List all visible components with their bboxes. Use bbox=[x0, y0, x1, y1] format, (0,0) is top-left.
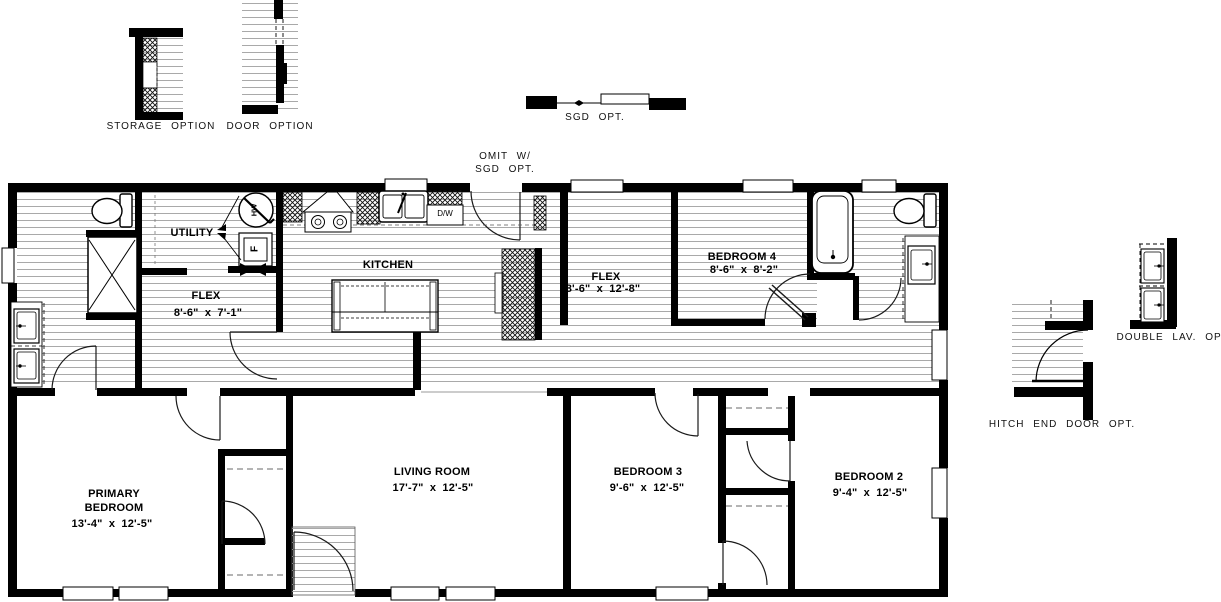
hitch-end-door-diagram bbox=[1012, 300, 1093, 420]
room-label-flex-front: FLEX bbox=[192, 290, 221, 302]
sgd-option-diagram bbox=[526, 94, 686, 110]
room-dims-bedroom4: 8'-6" x 8'-2" bbox=[710, 264, 778, 276]
room-label-bedroom2: BEDROOM 2 bbox=[835, 471, 903, 483]
floorplan-canvas: UTILITY FLEX 8'-6" x 7'-1" KITCHEN FLEX … bbox=[0, 0, 1221, 602]
storage-option-label: STORAGE OPTION bbox=[107, 121, 216, 132]
storage-option-diagram bbox=[129, 28, 183, 120]
double-lav-label: DOUBLE LAV. OPT. bbox=[1117, 332, 1221, 343]
water-heater-label: HW bbox=[250, 204, 259, 217]
door-option-label: DOOR OPTION bbox=[226, 121, 313, 132]
room-label-kitchen: KITCHEN bbox=[363, 259, 413, 271]
room-label-bedroom3: BEDROOM 3 bbox=[614, 466, 682, 478]
room-dims-bedroom2: 9'-4" x 12'-5" bbox=[833, 487, 908, 499]
room-dims-flex-front: 8'-6" x 7'-1" bbox=[174, 307, 242, 319]
furnace-label: F bbox=[250, 246, 261, 252]
room-dims-primary-bedroom: 13'-4" x 12'-5" bbox=[72, 518, 153, 530]
room-label-living-room: LIVING ROOM bbox=[394, 466, 470, 478]
floorplan-drawing bbox=[0, 0, 1221, 602]
hitch-end-door-label: HITCH END DOOR OPT. bbox=[989, 419, 1135, 430]
door-option-diagram bbox=[242, 0, 298, 114]
room-dims-bedroom3: 9'-6" x 12'-5" bbox=[610, 482, 685, 494]
room-label-utility: UTILITY bbox=[171, 227, 214, 239]
omit-with-sgd-note: OMIT W/ SGD OPT. bbox=[475, 150, 535, 176]
room-label-flex-mid: FLEX bbox=[592, 271, 621, 283]
sgd-option-label: SGD OPT. bbox=[565, 112, 625, 123]
room-dims-flex-mid: 8'-6" x 12'-8" bbox=[566, 283, 641, 295]
room-label-primary-bedroom: PRIMARY BEDROOM bbox=[70, 487, 158, 515]
dishwasher-label: D/W bbox=[437, 209, 453, 218]
room-dims-living-room: 17'-7" x 12'-5" bbox=[393, 482, 474, 494]
room-label-bedroom4: BEDROOM 4 bbox=[708, 251, 776, 263]
double-lav-diagram bbox=[1130, 238, 1177, 329]
